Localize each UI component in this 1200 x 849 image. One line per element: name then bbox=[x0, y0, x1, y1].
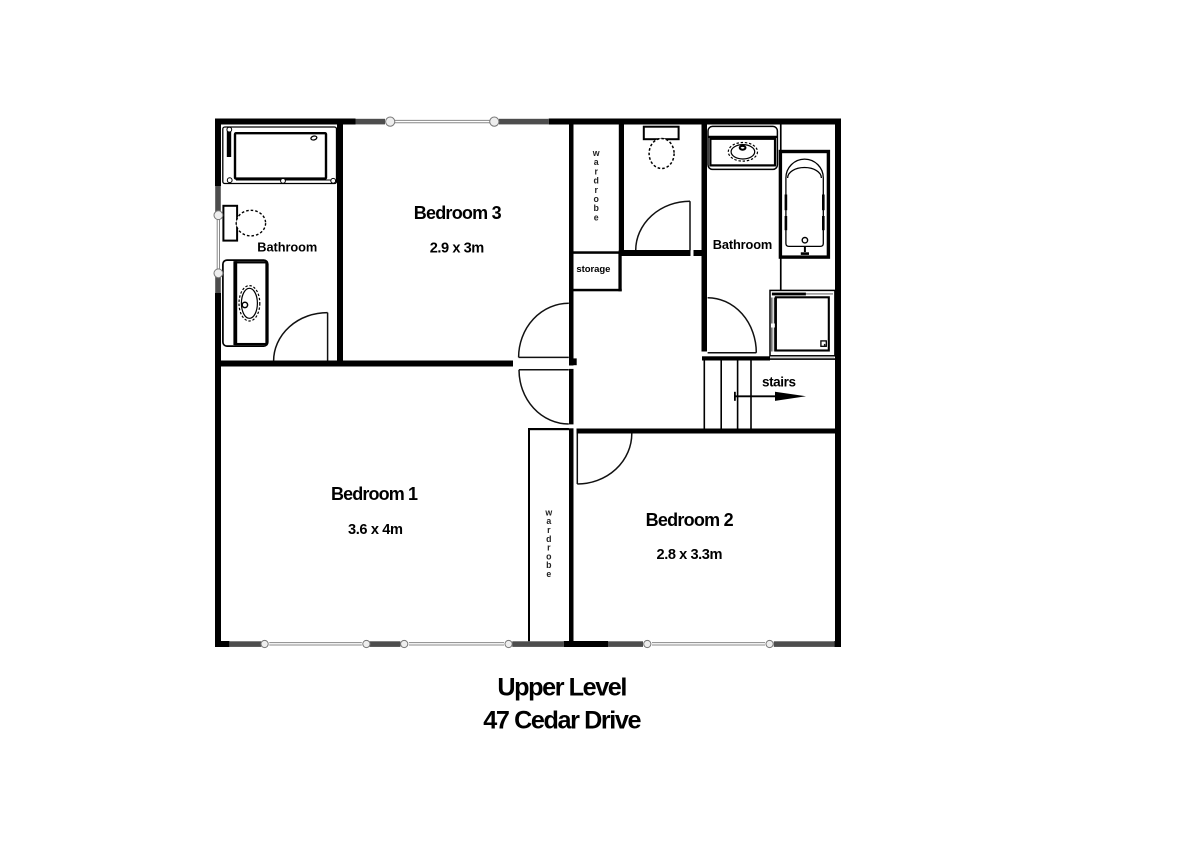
svg-text:Bedroom 3: Bedroom 3 bbox=[414, 203, 502, 223]
svg-text:e: e bbox=[594, 212, 599, 222]
svg-text:2.8 x 3.3m: 2.8 x 3.3m bbox=[657, 547, 723, 563]
svg-text:2.9 x 3m: 2.9 x 3m bbox=[430, 241, 485, 257]
svg-text:47 Cedar Drive: 47 Cedar Drive bbox=[483, 707, 641, 735]
svg-text:Bathroom: Bathroom bbox=[257, 239, 317, 254]
svg-text:3.6 x 4m: 3.6 x 4m bbox=[348, 522, 403, 538]
svg-text:Bedroom 2: Bedroom 2 bbox=[646, 510, 734, 530]
svg-text:Bedroom 1: Bedroom 1 bbox=[331, 484, 418, 504]
svg-text:storage: storage bbox=[576, 264, 610, 275]
svg-text:Upper Level: Upper Level bbox=[497, 674, 627, 702]
svg-text:Bathroom: Bathroom bbox=[713, 237, 773, 252]
svg-text:stairs: stairs bbox=[762, 375, 796, 390]
svg-text:e: e bbox=[546, 569, 551, 579]
